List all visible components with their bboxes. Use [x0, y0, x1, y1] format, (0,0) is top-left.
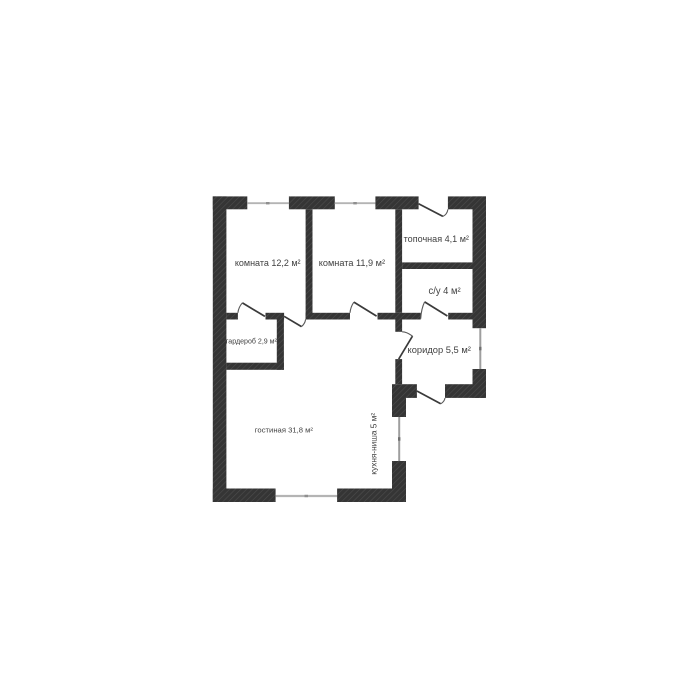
svg-text:комната 11,9 м²: комната 11,9 м² — [319, 258, 386, 269]
svg-text:кухня-ниша 5 м²: кухня-ниша 5 м² — [370, 413, 379, 475]
svg-text:с/у 4 м²: с/у 4 м² — [429, 286, 462, 297]
svg-text:топочная 4,1 м²: топочная 4,1 м² — [404, 234, 470, 245]
svg-text:гардероб 2,9 м²: гардероб 2,9 м² — [226, 337, 278, 346]
svg-text:коридор 5,5 м²: коридор 5,5 м² — [408, 345, 472, 356]
svg-text:гостиная 31,8 м²: гостиная 31,8 м² — [255, 425, 314, 434]
svg-text:комната 12,2 м²: комната 12,2 м² — [235, 258, 301, 269]
